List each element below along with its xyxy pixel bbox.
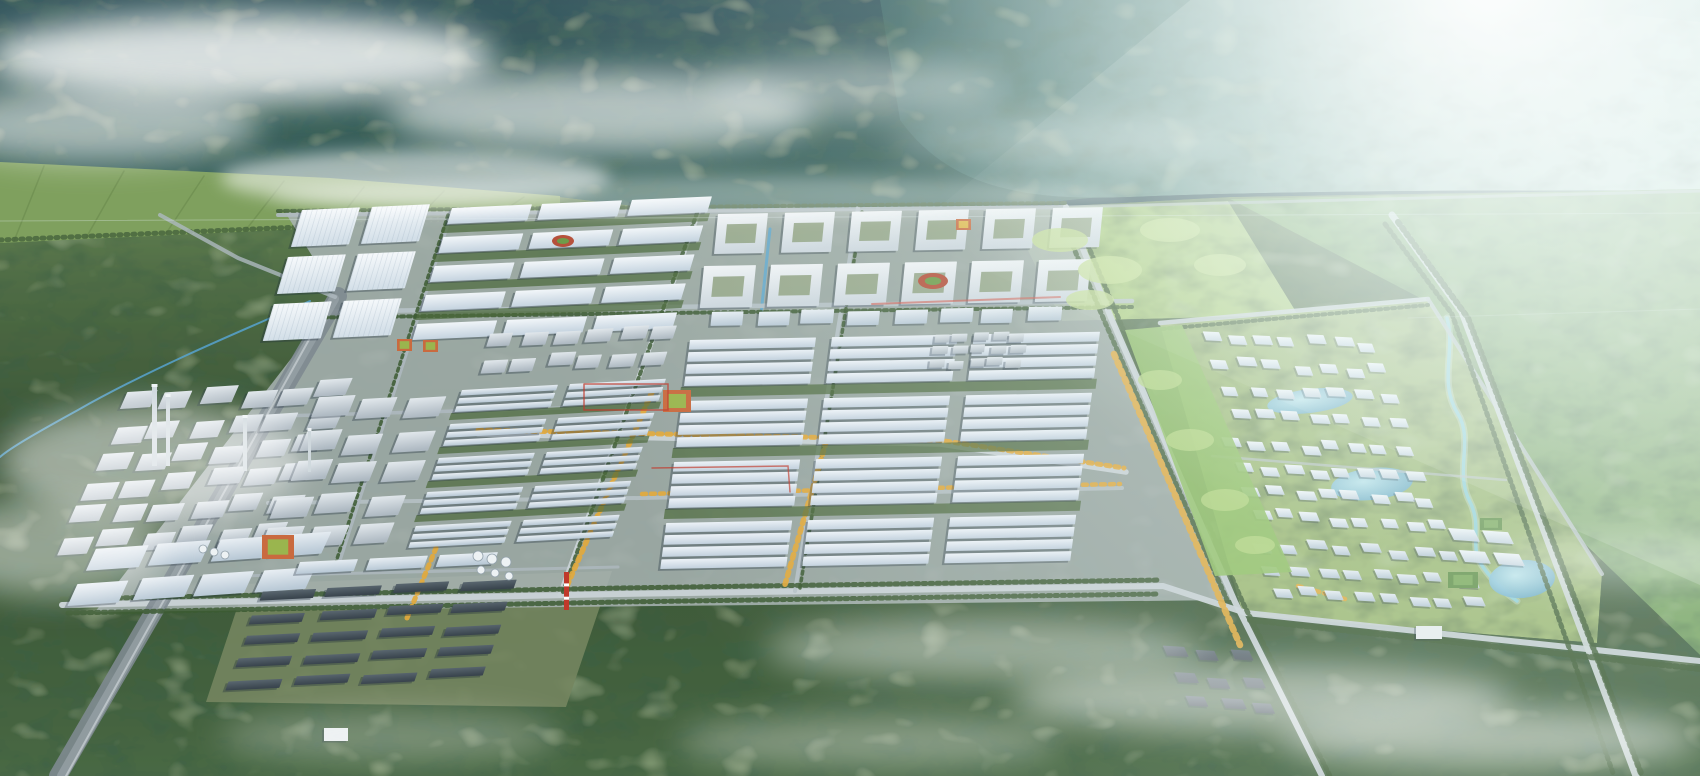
sun-flare	[0, 0, 1700, 776]
aerial-render-stage	[0, 0, 1700, 776]
industrial-park-rendering	[0, 0, 1700, 776]
sun-flare-core	[0, 0, 1700, 776]
